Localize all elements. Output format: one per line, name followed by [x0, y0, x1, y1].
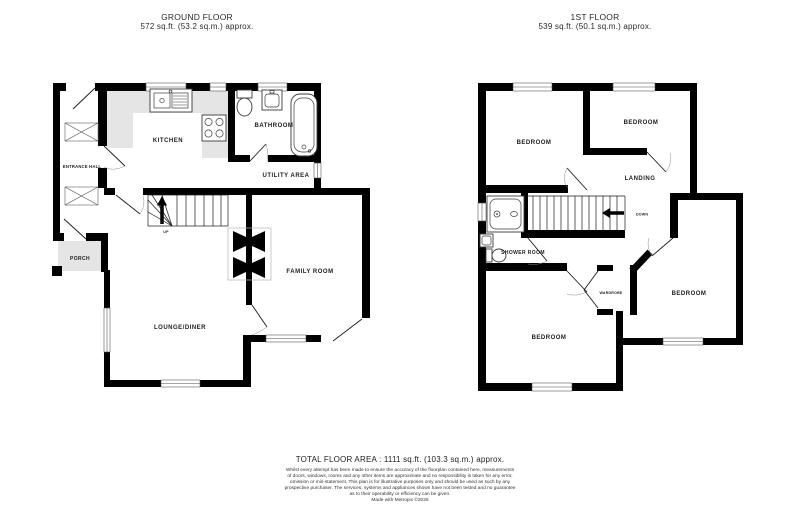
floorplan-page: GROUND FLOOR 572 sq.ft. (53.2 sq.m.) app…: [0, 0, 800, 511]
room-label-bedroom-right: BEDROOM: [672, 291, 707, 297]
room-label-kitchen: KITCHEN: [153, 138, 183, 144]
stairs-up-label: UP: [163, 230, 169, 234]
room-label-lounge-diner: LOUNGE/DINER: [154, 325, 206, 331]
disclaimer: Whilst every attempt has been made to en…: [0, 468, 800, 504]
kitchen-hob: [202, 115, 226, 141]
room-label-landing: LANDING: [625, 176, 656, 182]
stairs-down-label: DOWN: [636, 213, 648, 217]
room-label-bathroom: BATHROOM: [255, 123, 294, 129]
room-label-shower-room: SHOWER ROOM: [501, 250, 545, 256]
room-label-entrance-hall: ENTRANCE HALL: [63, 164, 101, 169]
staircase-up: [148, 195, 228, 226]
room-label-bedroom-front-right: BEDROOM: [624, 120, 659, 126]
floorplan-drawing: ENTRANCE HALL PORCH KITCHEN BATHROOM UTI…: [0, 0, 800, 511]
room-label-bedroom-front-left: BEDROOM: [517, 140, 552, 146]
kitchen-sink: [150, 89, 192, 112]
bathroom-basin: [262, 90, 282, 110]
total-floor-area: TOTAL FLOOR AREA : 1111 sq.ft. (103.3 sq…: [0, 455, 800, 464]
room-label-utility-area: UTILITY AREA: [262, 173, 309, 179]
room-label-porch: PORCH: [70, 256, 90, 262]
staircase-down: [527, 196, 625, 230]
credit-line: Made with Metropix ©2026: [0, 498, 800, 504]
room-label-bedroom-back-left: BEDROOM: [532, 335, 567, 341]
toilet: [237, 90, 252, 116]
bathtub: [291, 94, 317, 156]
first-floor-plan: BEDROOM BEDROOM LANDING SHOWER ROOM WARD…: [478, 83, 743, 391]
room-label-wardrobe: WARDROBE: [600, 291, 623, 295]
room-label-family-room: FAMILY ROOM: [286, 269, 333, 275]
shower-room-basin: [480, 234, 493, 247]
ground-floor-plan: ENTRANCE HALL PORCH KITCHEN BATHROOM UTI…: [52, 83, 370, 387]
shower-enclosure: [487, 196, 524, 232]
footer: TOTAL FLOOR AREA : 1111 sq.ft. (103.3 sq…: [0, 455, 800, 504]
